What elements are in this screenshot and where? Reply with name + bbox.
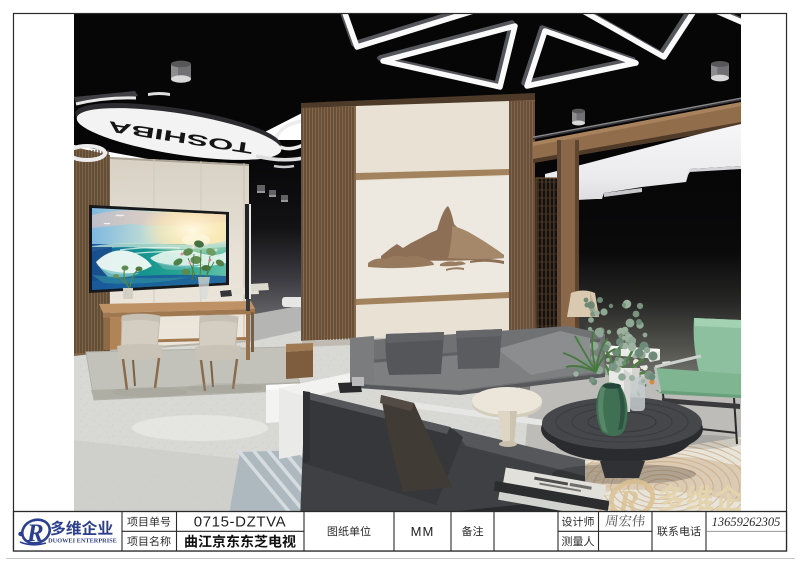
svg-text:13659262305: 13659262305 xyxy=(712,515,781,529)
svg-text:0715-DZTVA: 0715-DZTVA xyxy=(194,514,286,531)
svg-text:MM: MM xyxy=(411,524,435,539)
svg-text:DUOWEI ENTERPRISE: DUOWEI ENTERPRISE xyxy=(48,538,117,545)
svg-text:R: R xyxy=(26,520,44,547)
